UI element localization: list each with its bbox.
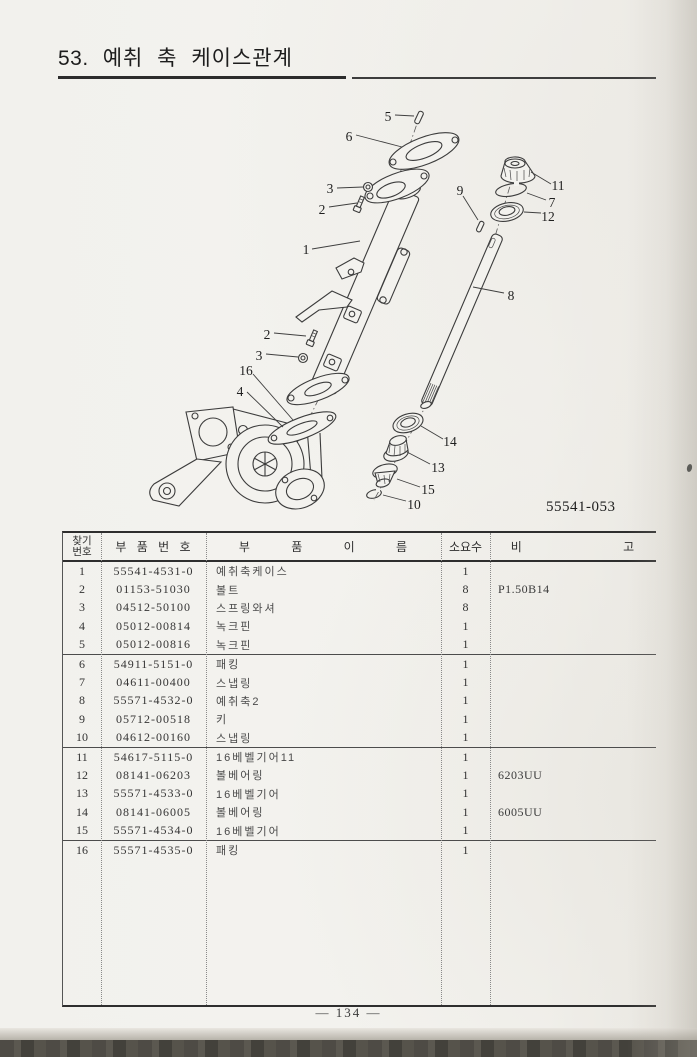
callout-16: 16 (239, 363, 253, 378)
cell-qty: 1 (441, 637, 490, 652)
parts-table: 찾기 번호 부 품 번 호 부 품 이 름 소요수 비 고 1 55541-45… (62, 531, 656, 1007)
cell-find-no: 1 (63, 564, 101, 579)
bevel-gear-11 (501, 157, 535, 183)
table-row: 16 55571-4535-0 패킹 1 (63, 840, 656, 859)
table-row: 5 05012-00816 녹크핀 1 (63, 636, 656, 654)
table-row: 2 01153-51030 볼트 8 P1.50B14 (63, 580, 656, 598)
catalog-page: 53.예취 축 케이스관계 (0, 0, 697, 1057)
callout-2a: 2 (319, 202, 326, 217)
cell-qty: 1 (441, 675, 490, 690)
cell-find-no: 5 (63, 637, 101, 652)
callout-8: 8 (508, 288, 515, 303)
callout-10: 10 (407, 497, 421, 512)
cell-part-name: 볼베어링 (206, 767, 441, 783)
section-title: 예취 축 케이스관계 (103, 47, 293, 70)
cell-part-no: 55571-4535-0 (101, 843, 206, 858)
snap-ring-7 (495, 181, 528, 198)
cell-part-name: 스프링와셔 (206, 600, 441, 616)
cell-part-no: 08141-06005 (101, 805, 206, 820)
diagram-id: 55541-053 (546, 499, 616, 516)
callout-13: 13 (431, 460, 445, 475)
cell-part-no: 55541-4531-0 (101, 564, 206, 579)
callout-12: 12 (541, 209, 555, 224)
cell-qty: 1 (441, 730, 490, 745)
cell-part-name: 녹크핀 (206, 637, 441, 653)
cell-find-no: 11 (63, 750, 101, 765)
cell-part-name: 패킹 (206, 656, 441, 672)
header-part-no: 부 품 번 호 (101, 538, 206, 555)
cell-qty: 1 (441, 768, 490, 783)
cell-part-no: 54911-5151-0 (101, 657, 206, 672)
cell-find-no: 2 (63, 582, 101, 597)
table-row: 8 55571-4532-0 예취축2 1 (63, 692, 656, 710)
cell-part-name: 스냅링 (206, 675, 441, 691)
cell-part-no: 05712-00518 (101, 712, 206, 727)
callout-11: 11 (552, 178, 565, 193)
header-find-no: 찾기 번호 (63, 536, 101, 558)
cell-part-name: 예취축2 (206, 693, 441, 709)
cell-part-no: 05012-00816 (101, 637, 206, 652)
cell-find-no: 4 (63, 619, 101, 634)
cell-find-no: 12 (63, 768, 101, 783)
cell-qty: 1 (441, 693, 490, 708)
cell-part-no: 04512-50100 (101, 600, 206, 615)
cell-part-no: 04611-00400 (101, 675, 206, 690)
cell-find-no: 6 (63, 657, 101, 672)
cell-find-no: 9 (63, 712, 101, 727)
cell-qty: 1 (441, 786, 490, 801)
title-underline-thin (352, 77, 656, 79)
key (476, 221, 485, 233)
callout-1: 1 (303, 242, 310, 257)
snap-ring-10 (366, 488, 383, 500)
cell-find-no: 10 (63, 730, 101, 745)
table-row: 10 04612-00160 스냅링 1 (63, 729, 656, 747)
cell-qty: 8 (441, 582, 490, 597)
cell-qty: 1 (441, 657, 490, 672)
cell-qty: 8 (441, 600, 490, 615)
scan-edge-light (0, 1028, 697, 1040)
callout-6: 6 (346, 129, 353, 144)
table-row: 1 55541-4531-0 예취축케이스 1 (63, 562, 656, 580)
cell-part-name: 녹크핀 (206, 618, 441, 634)
table-row: 12 08141-06203 볼베어링 1 6203UU (63, 766, 656, 784)
cell-part-name: 키 (206, 711, 441, 727)
bevel-gear-13 (382, 434, 410, 464)
cell-part-no: 54617-5115-0 (101, 750, 206, 765)
table-row: 7 04611-00400 스냅링 1 (63, 673, 656, 691)
cell-part-name: 16베벨기어 (206, 823, 441, 839)
cell-qty: 1 (441, 823, 490, 838)
knock-pin-top (414, 111, 424, 125)
column-divider (206, 533, 207, 1005)
table-row: 3 04512-50100 스프링와셔 8 (63, 599, 656, 617)
callout-3a: 3 (327, 181, 334, 196)
header-part-name: 부 품 이 름 (206, 538, 441, 555)
cell-part-name: 예취축케이스 (206, 563, 441, 579)
table-row: 15 55571-4534-0 16베벨기어 1 (63, 821, 656, 839)
cell-qty: 1 (441, 843, 490, 858)
callout-14: 14 (443, 434, 457, 449)
cell-part-no: 08141-06203 (101, 768, 206, 783)
cell-find-no: 3 (63, 600, 101, 615)
cell-part-no: 55571-4533-0 (101, 786, 206, 801)
ball-bearing-12 (489, 200, 525, 224)
cell-part-no: 04612-00160 (101, 730, 206, 745)
page-number: — 134 — (0, 1005, 697, 1021)
cell-qty: 1 (441, 712, 490, 727)
column-divider (490, 533, 491, 1005)
column-divider (441, 533, 442, 1005)
cell-part-name: 볼트 (206, 582, 441, 598)
column-divider (101, 533, 102, 1005)
cell-part-name: 볼베어링 (206, 804, 441, 820)
cell-qty: 1 (441, 564, 490, 579)
cell-part-name: 스냅링 (206, 730, 441, 746)
cell-part-no: 05012-00814 (101, 619, 206, 634)
cell-part-no: 55571-4534-0 (101, 823, 206, 838)
scan-edge-right (627, 0, 697, 1057)
cell-part-no: 01153-51030 (101, 582, 206, 597)
table-row: 13 55571-4533-0 16베벨기어 1 (63, 785, 656, 803)
cell-find-no: 16 (63, 843, 101, 858)
cell-find-no: 8 (63, 693, 101, 708)
page-title: 53.예취 축 케이스관계 (58, 42, 293, 72)
cell-part-name: 16베벨기어 (206, 786, 441, 802)
callout-4: 4 (237, 384, 244, 399)
cell-part-no: 55571-4532-0 (101, 693, 206, 708)
exploded-parts-diagram: 1 2 3 2 3 4 5 6 7 8 9 10 11 12 13 14 15 … (0, 95, 697, 535)
ball-bearing-14 (390, 410, 425, 437)
cell-qty: 1 (441, 750, 490, 765)
table-row: 11 54617-5115-0 16베벨기어11 1 (63, 747, 656, 766)
scan-edge-dark (0, 1040, 697, 1057)
cell-find-no: 15 (63, 823, 101, 838)
cell-find-no: 13 (63, 786, 101, 801)
callout-2b: 2 (264, 327, 271, 342)
shaft-case-tube (283, 182, 422, 411)
table-row: 14 08141-06005 볼베어링 1 6005UU (63, 803, 656, 821)
header-qty: 소요수 (441, 538, 490, 555)
section-number: 53. (58, 47, 89, 70)
callout-15: 15 (421, 482, 435, 497)
table-row: 9 05712-00518 키 1 (63, 710, 656, 728)
table-row: 6 54911-5151-0 패킹 1 (63, 654, 656, 673)
table-body: 1 55541-4531-0 예취축케이스 1 2 01153-51030 볼트… (63, 562, 656, 859)
cell-find-no: 7 (63, 675, 101, 690)
callout-5: 5 (385, 109, 392, 124)
bolt-washer-lower (299, 329, 319, 362)
table-header: 찾기 번호 부 품 번 호 부 품 이 름 소요수 비 고 (63, 533, 656, 562)
cell-qty: 1 (441, 805, 490, 820)
cell-part-name: 패킹 (206, 842, 441, 858)
table-row: 4 05012-00814 녹크핀 1 (63, 617, 656, 635)
cell-part-name: 16베벨기어11 (206, 749, 441, 765)
cell-find-no: 14 (63, 805, 101, 820)
title-underline-thick (58, 76, 346, 79)
mower-shaft (420, 233, 504, 410)
callout-9: 9 (457, 183, 464, 198)
bevel-gear-15 (371, 461, 399, 488)
callout-7: 7 (549, 195, 556, 210)
cell-qty: 1 (441, 619, 490, 634)
callout-3b: 3 (256, 348, 263, 363)
